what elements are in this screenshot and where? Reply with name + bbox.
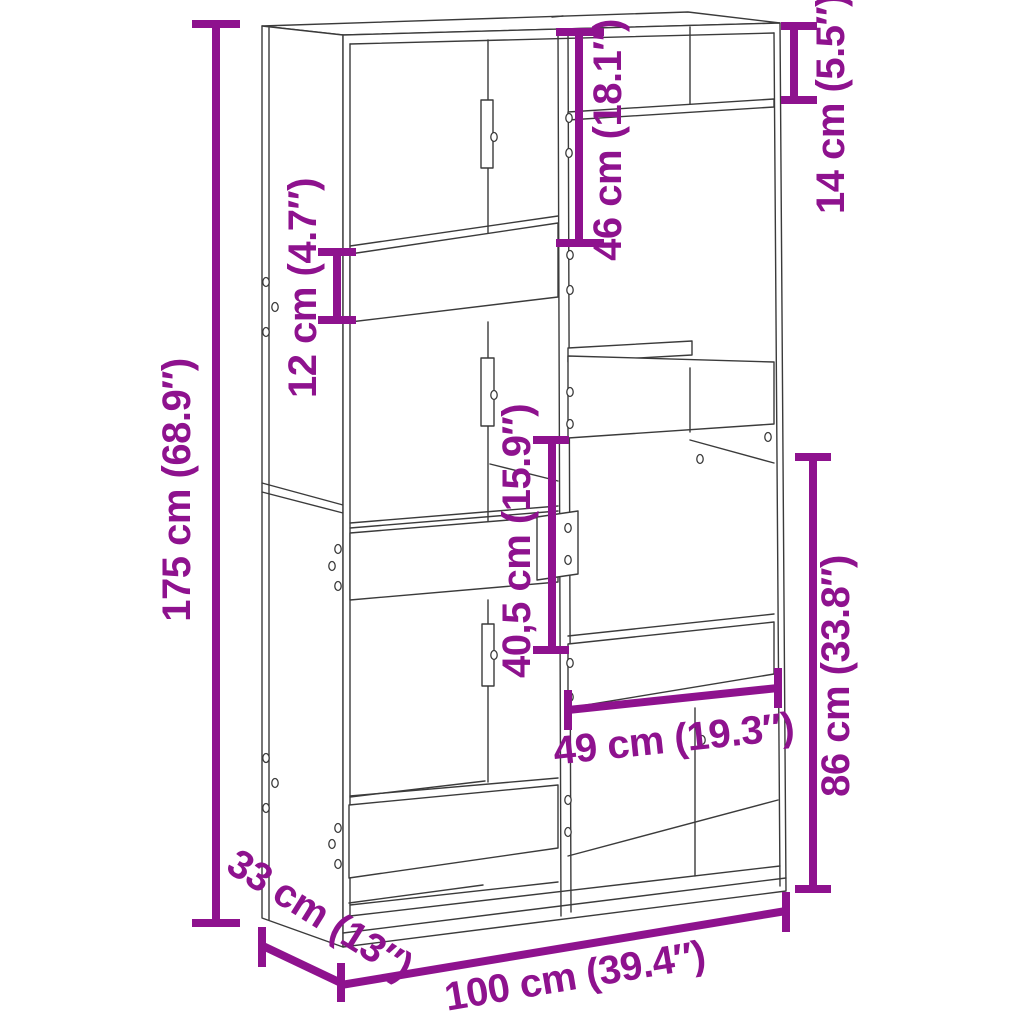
dim-middle-compartment-label: 40,5 cm (15.9″) [495, 404, 539, 678]
dim-top-compartment-label: 46 cm (18.1″) [586, 19, 630, 261]
dim-top-right-shelf-14: 14 cm (5.5″) [781, 0, 853, 214]
dim-lower-right-86: 86 cm (33.8″) [795, 457, 858, 889]
side-panel [262, 26, 343, 947]
bookcase-dimension-diagram: 175 cm (68.9″) 12 cm (4.7″) 46 cm (18.1″… [0, 0, 1024, 1024]
dim-height-label: 175 cm (68.9″) [155, 358, 199, 621]
diagram-stage: 175 cm (68.9″) 12 cm (4.7″) 46 cm (18.1″… [0, 0, 1024, 1024]
dim-shelf-band-label: 12 cm (4.7″) [281, 178, 325, 398]
dim-height-175: 175 cm (68.9″) [155, 24, 240, 923]
dim-lower-right-label: 86 cm (33.8″) [814, 555, 858, 797]
dim-top-right-shelf-label: 14 cm (5.5″) [809, 0, 853, 214]
divider-connector-plate [537, 511, 578, 580]
